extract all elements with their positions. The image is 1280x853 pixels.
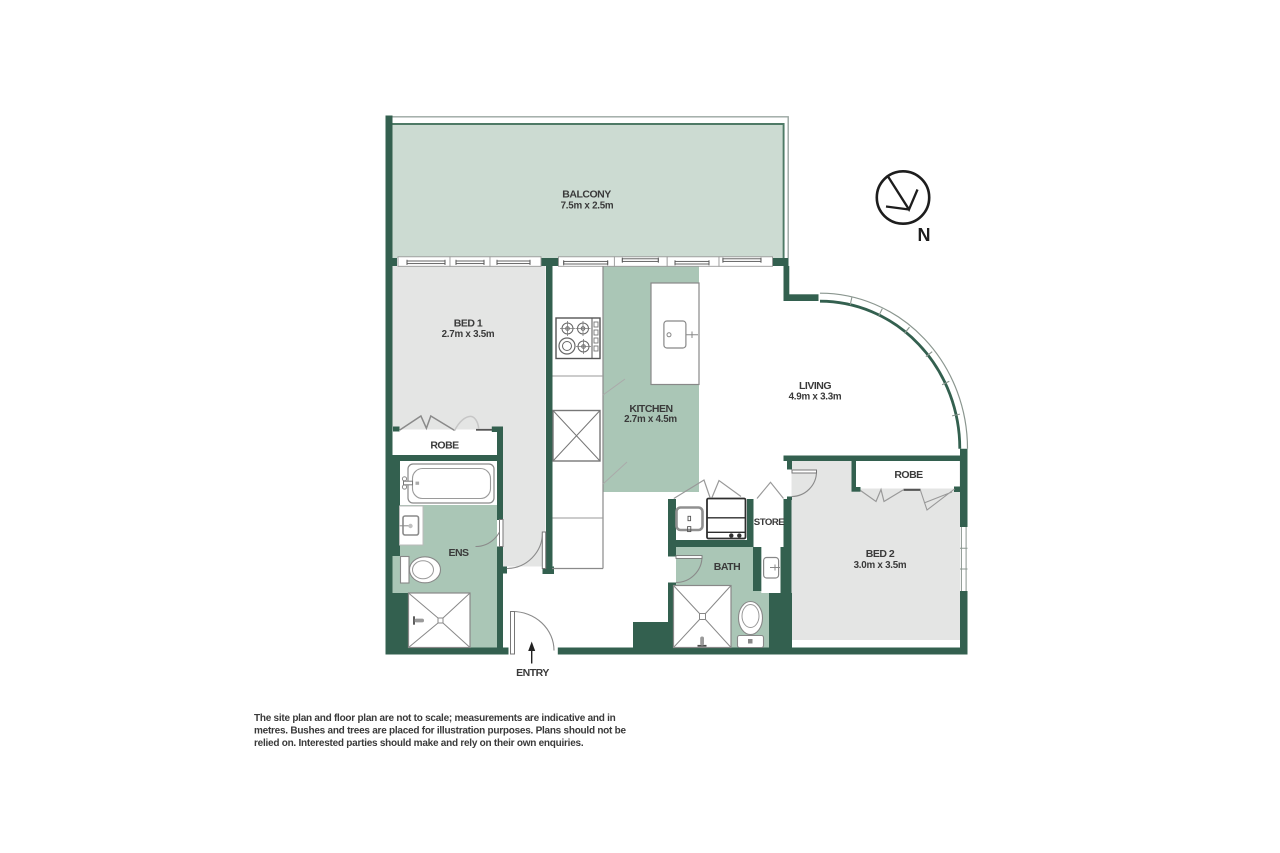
svg-text:ENTRY: ENTRY [516,667,549,679]
svg-text:metres. Bushes and trees are p: metres. Bushes and trees are placed for … [254,726,627,737]
svg-text:BALCONY: BALCONY [562,189,611,201]
svg-text:2.7m x 3.5m: 2.7m x 3.5m [442,329,495,340]
svg-text:2.7m x 4.5m: 2.7m x 4.5m [624,414,677,425]
svg-text:3.0m x 3.5m: 3.0m x 3.5m [854,560,907,571]
svg-text:ENS: ENS [448,547,469,559]
svg-text:ROBE: ROBE [894,469,923,481]
svg-text:relied on. Interested parties: relied on. Interested parties should mak… [254,738,584,749]
svg-text:BATH: BATH [714,561,740,573]
svg-text:LIVING: LIVING [799,380,831,392]
svg-text:The site plan and floor plan a: The site plan and floor plan are not to … [254,713,616,724]
svg-text:ROBE: ROBE [430,440,459,452]
svg-text:STORE: STORE [754,517,785,528]
svg-text:N: N [918,225,931,245]
svg-text:7.5m x 2.5m: 7.5m x 2.5m [561,200,614,211]
svg-text:BED 2: BED 2 [866,548,895,560]
svg-text:4.9m x 3.3m: 4.9m x 3.3m [789,392,842,403]
svg-text:BED 1: BED 1 [454,318,483,330]
